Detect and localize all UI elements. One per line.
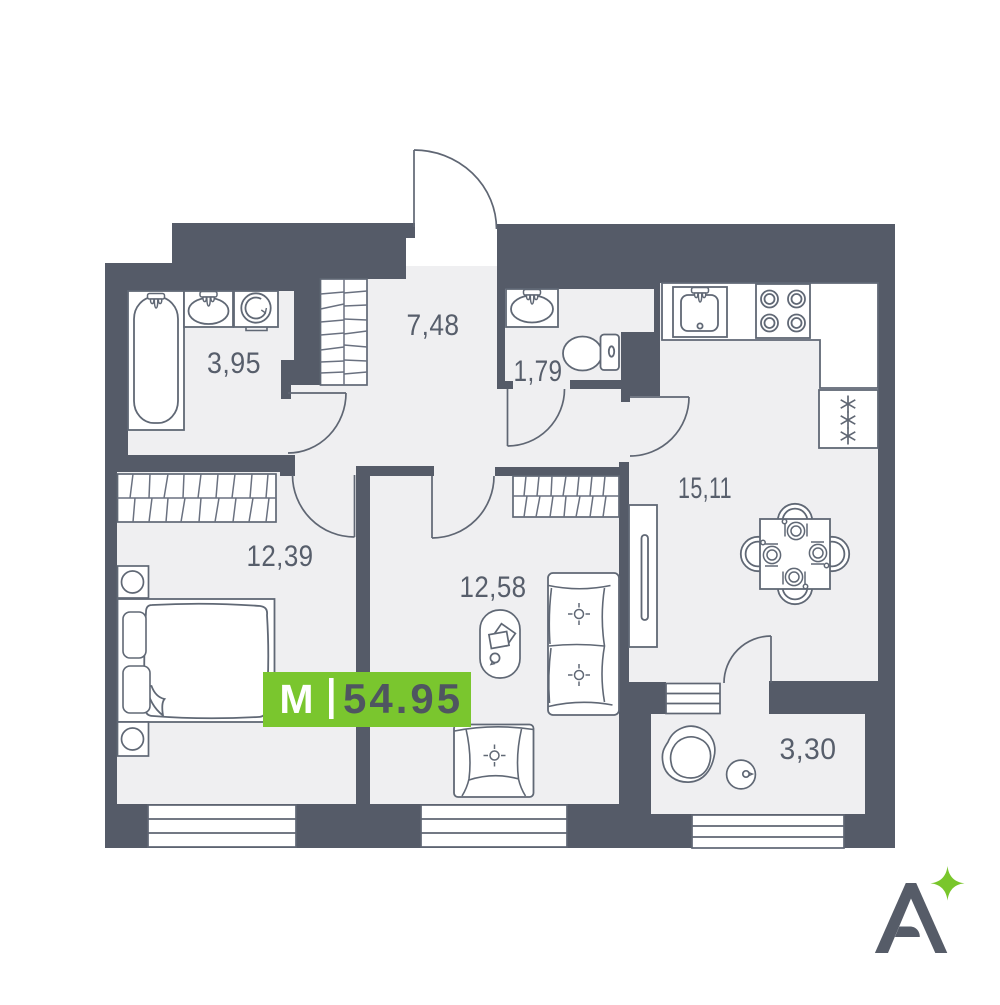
- svg-text:15,11: 15,11: [678, 472, 732, 505]
- svg-text:M: M: [279, 676, 313, 722]
- svg-text:12,39: 12,39: [247, 540, 314, 573]
- svg-text:12,58: 12,58: [460, 571, 527, 604]
- svg-text:1,79: 1,79: [514, 355, 563, 388]
- svg-text:3,30: 3,30: [780, 733, 837, 766]
- svg-text:3,95: 3,95: [207, 347, 261, 380]
- svg-text:7,48: 7,48: [407, 309, 460, 342]
- svg-text:54.95: 54.95: [343, 675, 463, 722]
